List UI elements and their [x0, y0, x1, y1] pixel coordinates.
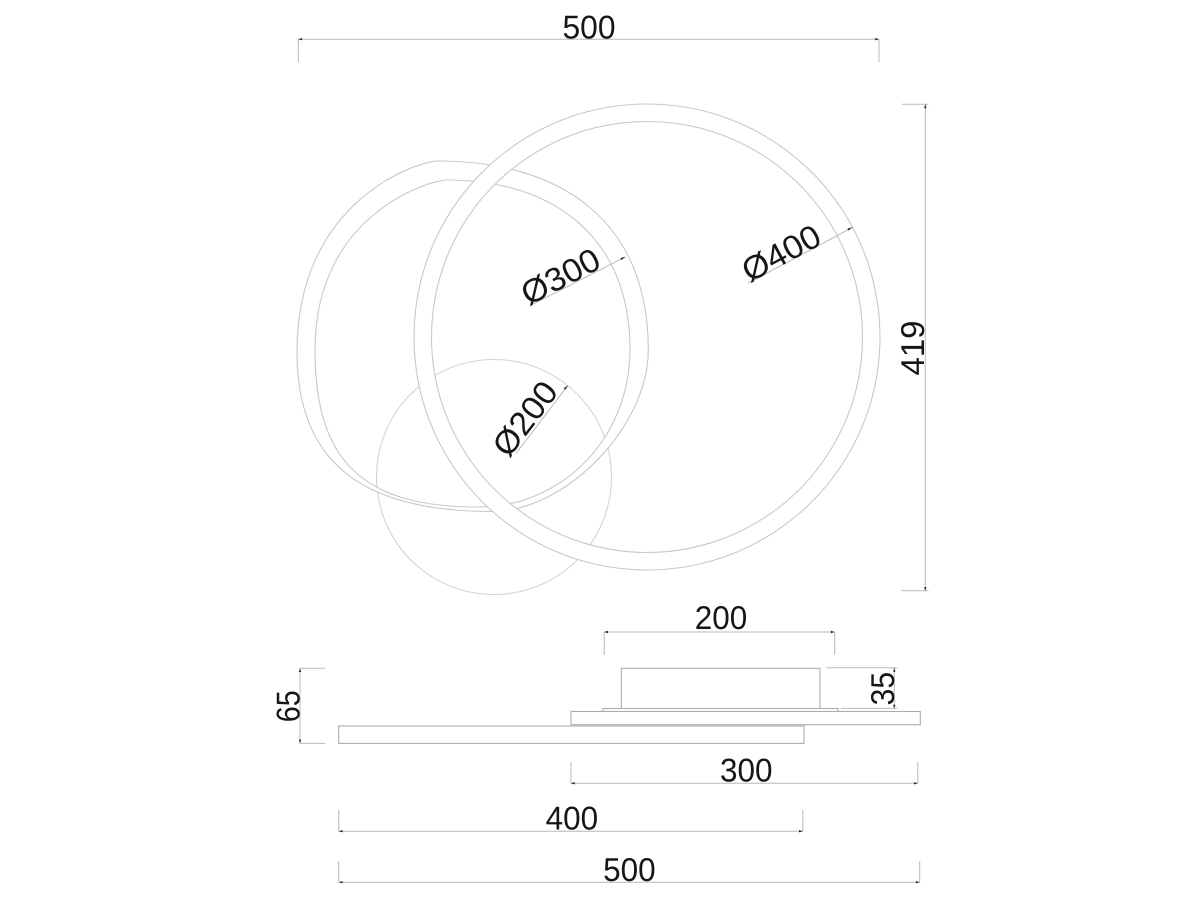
svg-text:Ø200: Ø200	[485, 374, 565, 463]
svg-text:500: 500	[603, 851, 656, 888]
svg-text:35: 35	[864, 672, 901, 706]
svg-text:Ø300: Ø300	[515, 240, 607, 312]
svg-text:65: 65	[270, 690, 307, 722]
svg-text:Ø400: Ø400	[735, 217, 827, 289]
svg-text:500: 500	[563, 8, 616, 45]
svg-text:300: 300	[720, 752, 773, 789]
svg-text:419: 419	[894, 321, 931, 376]
svg-text:400: 400	[546, 799, 599, 836]
svg-text:200: 200	[695, 599, 748, 636]
